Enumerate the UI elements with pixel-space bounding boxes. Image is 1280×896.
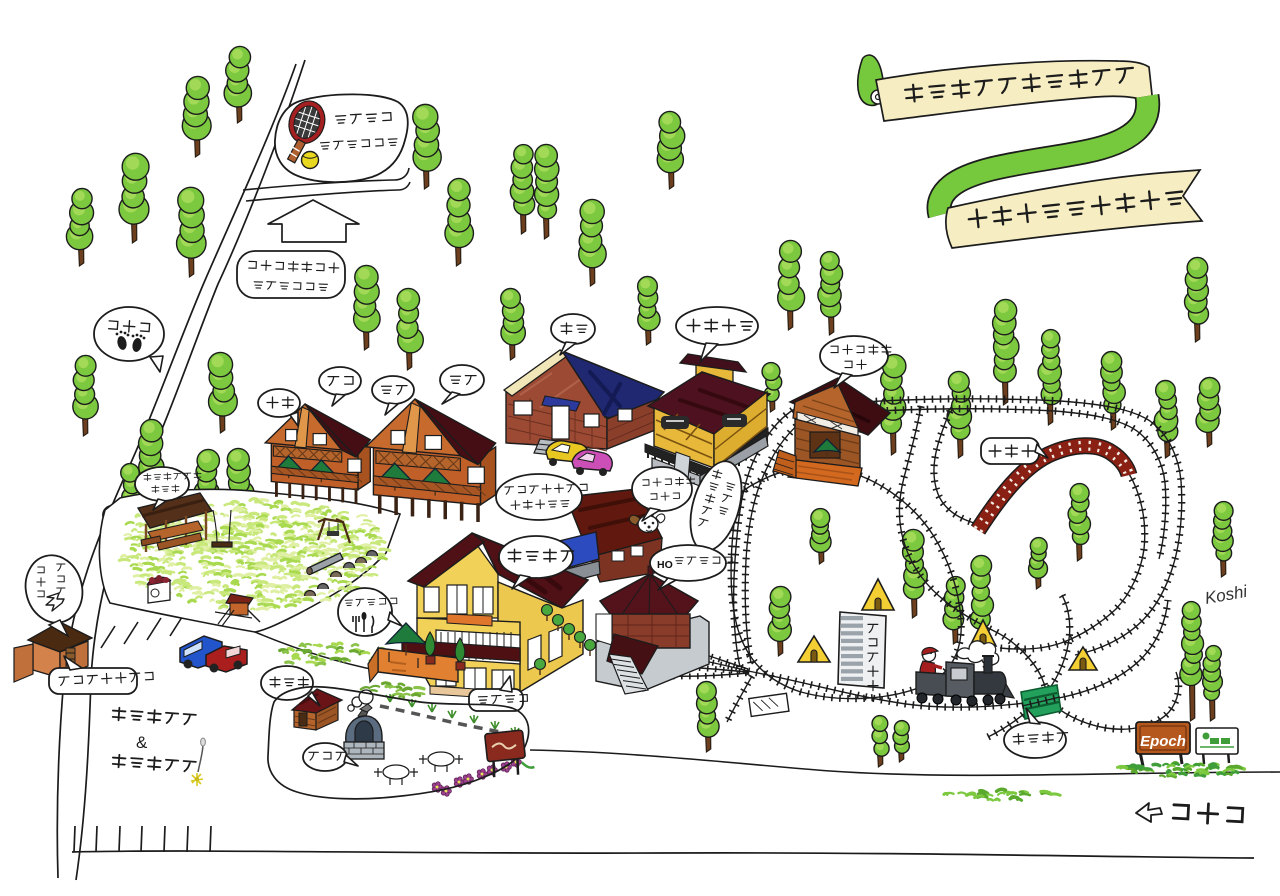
svg-text:HO: HO: [657, 559, 673, 571]
svg-text:Epoch: Epoch: [1140, 733, 1186, 750]
svg-text:&: &: [136, 733, 148, 752]
